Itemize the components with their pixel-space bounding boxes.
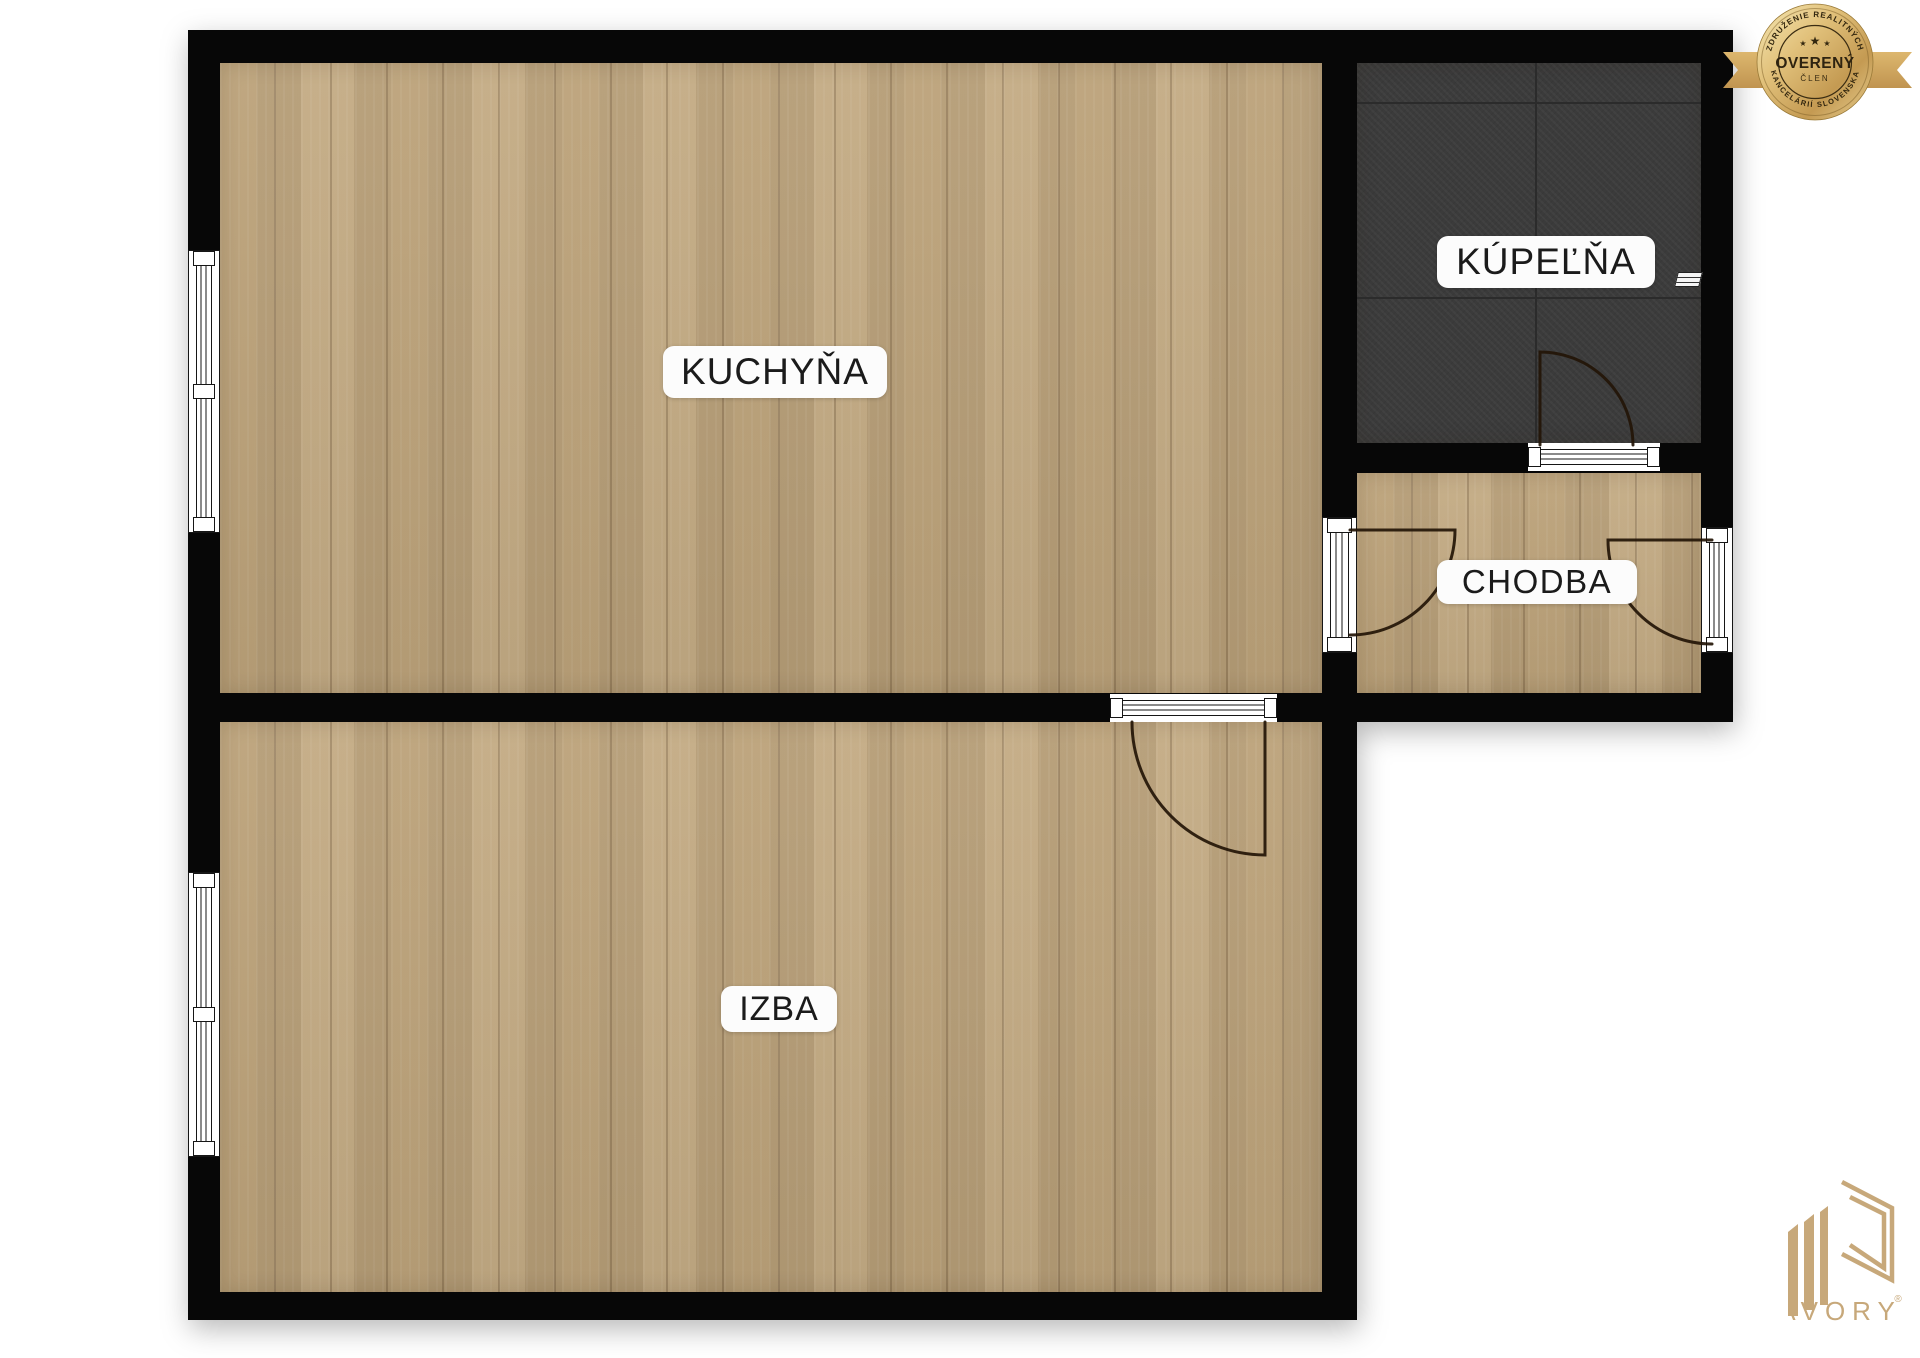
kitchen-window [188,250,220,533]
kitchen-label: KUCHYŇA [663,346,887,398]
badge-title: OVERENÝ [1775,54,1854,72]
window-mullion [193,1007,215,1022]
avory-logo: AVORY ® [1788,1168,1908,1328]
threshold-jamb [1647,447,1660,467]
window-mullion [193,384,215,399]
floorplan-canvas: KUCHYŇA KÚPEĽŇA CHODBA IZBA ZDRUŽENI [0,0,1920,1358]
threshold-jamb [1110,698,1123,718]
entrance-doorframe [1701,527,1733,653]
doorframe-cap [1706,637,1728,652]
window-frame-cap [193,1141,215,1156]
verified-member-badge: ZDRUŽENIE REALITNÝCH KANCELÁRIÍ SLOVENSK… [1700,0,1920,135]
hallway-label: CHODBA [1437,560,1637,604]
wall-room-right [1322,722,1357,1320]
threshold-jamb [1528,447,1541,467]
star-icon: ★ [1823,39,1830,48]
wall-top [188,30,1733,63]
tile-grout-line [1357,297,1701,299]
room-door-threshold [1110,694,1277,722]
avory-logo-door [1842,1182,1892,1280]
badge-subtitle: ČLEN [1800,74,1829,83]
registered-trademark-icon: ® [1894,1294,1902,1305]
window-frame-cap [193,873,215,888]
doorframe-glazing [1330,520,1349,650]
threshold-jamb [1264,698,1277,718]
doorframe-glazing [1709,530,1725,650]
wall-kitchen-room [188,693,1733,722]
bathroom-door-threshold [1528,443,1660,471]
floor-plan: KUCHYŇA KÚPEĽŇA CHODBA IZBA [0,0,1920,1358]
room-window [188,872,220,1157]
bathroom-label: KÚPEĽŇA [1437,236,1655,288]
radiator-icon [1674,272,1703,287]
doorframe-cap [1706,528,1728,543]
avory-logo-text: AVORY [1788,1296,1902,1326]
room-label: IZBA [721,986,837,1032]
window-frame-cap [193,517,215,532]
doorframe-cap [1327,637,1352,652]
window-frame-cap [193,251,215,266]
tile-grout-line [1357,102,1701,104]
kitchen-hallway-doorframe [1322,517,1357,653]
wall-bottom [188,1292,1357,1320]
threshold-lines [1541,449,1647,465]
star-icon: ★ [1799,39,1806,48]
threshold-lines [1123,700,1264,716]
star-icon: ★ [1810,34,1821,48]
doorframe-cap [1327,518,1352,533]
